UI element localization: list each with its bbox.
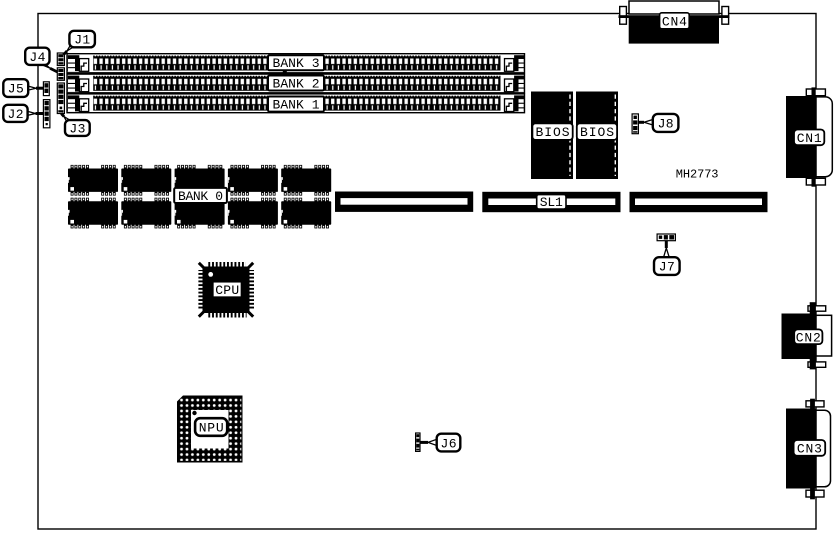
svg-text:BIOS: BIOS [536,125,570,140]
svg-text:BANK 0: BANK 0 [178,189,223,204]
svg-text:CPU: CPU [215,283,239,298]
svg-text:J4: J4 [29,50,45,65]
svg-text:BANK 1: BANK 1 [273,98,320,113]
svg-text:J1: J1 [74,33,90,48]
svg-text:CN3: CN3 [797,441,822,456]
svg-text:J6: J6 [441,436,457,451]
svg-text:J2: J2 [8,107,24,122]
svg-text:SL1: SL1 [540,195,563,210]
svg-text:J8: J8 [658,117,674,132]
svg-text:CN2: CN2 [796,330,821,345]
svg-text:J3: J3 [69,122,85,137]
svg-text:CN1: CN1 [797,131,822,146]
svg-text:BANK 3: BANK 3 [273,56,320,71]
svg-text:MH2773: MH2773 [676,167,719,181]
svg-text:BANK 2: BANK 2 [273,76,320,91]
svg-text:J7: J7 [659,260,675,275]
svg-text:CN4: CN4 [662,14,687,29]
svg-text:BIOS: BIOS [580,125,614,140]
svg-text:NPU: NPU [199,421,224,436]
svg-text:J5: J5 [8,82,24,97]
